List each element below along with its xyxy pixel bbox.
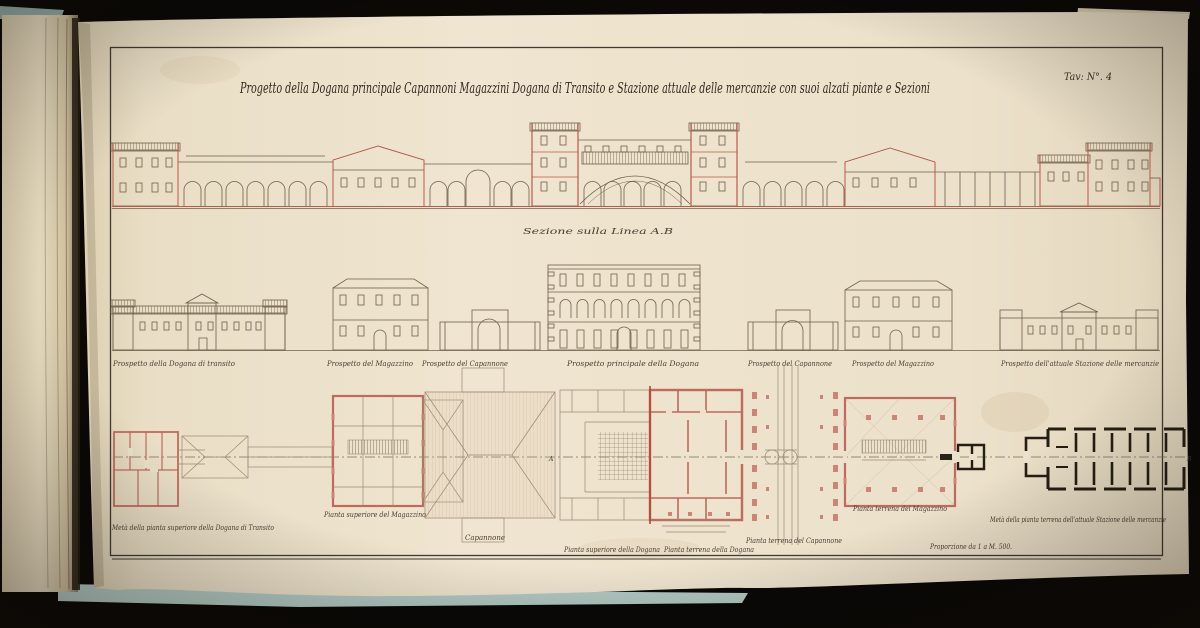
photograph-of-atlas-plate: Progetto della Dogana principale Capanno… [0,0,1200,628]
drawing-canvas: Progetto della Dogana principale Capanno… [0,0,1200,628]
photo-vignette [0,0,1200,628]
